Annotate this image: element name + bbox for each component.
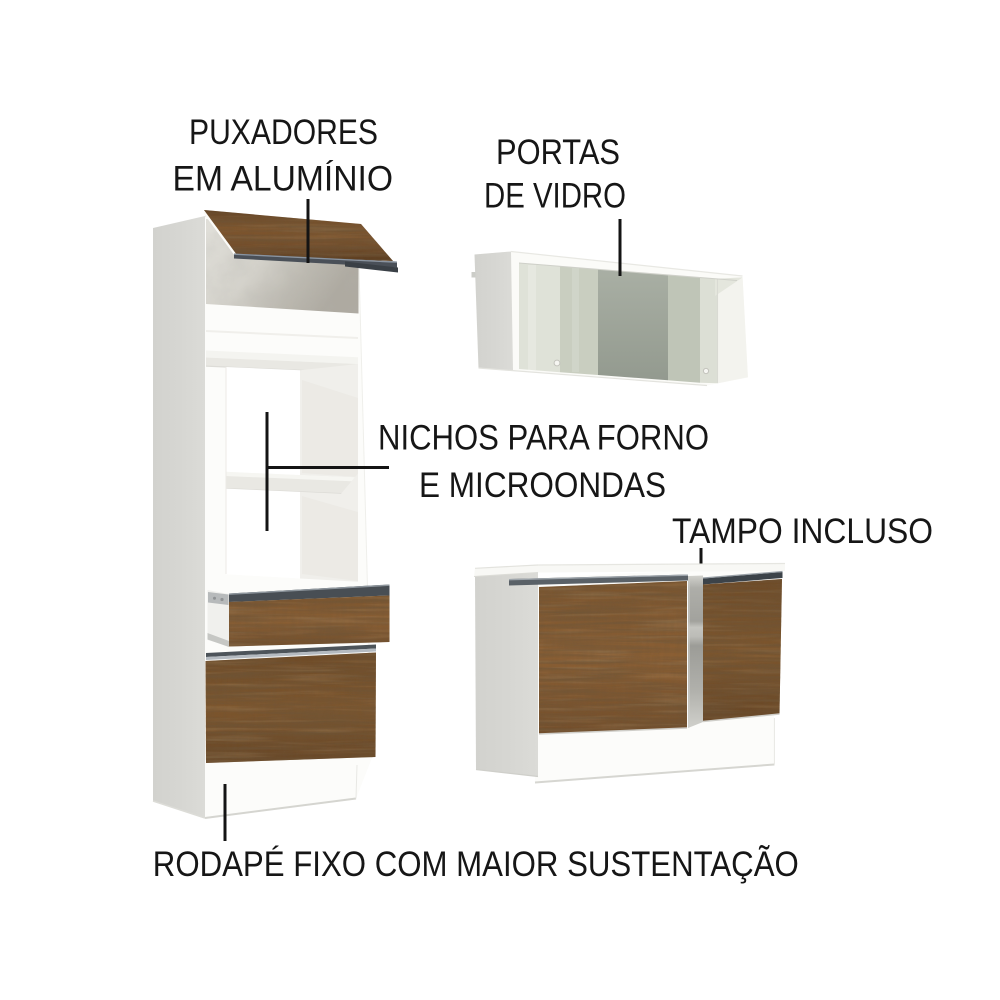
svg-text:PUXADORES: PUXADORES xyxy=(189,112,378,152)
svg-text:EM ALUMÍNIO: EM ALUMÍNIO xyxy=(173,159,394,199)
svg-text:NICHOS PARA FORNO: NICHOS PARA FORNO xyxy=(378,417,709,457)
svg-text:PORTAS: PORTAS xyxy=(496,132,620,172)
svg-text:DE VIDRO: DE VIDRO xyxy=(484,176,626,216)
svg-text:E MICROONDAS: E MICROONDAS xyxy=(419,465,666,505)
svg-text:RODAPÉ FIXO COM MAIOR SUSTENTA: RODAPÉ FIXO COM MAIOR SUSTENTAÇÃO xyxy=(153,844,799,884)
svg-text:TAMPO INCLUSO: TAMPO INCLUSO xyxy=(672,511,933,551)
